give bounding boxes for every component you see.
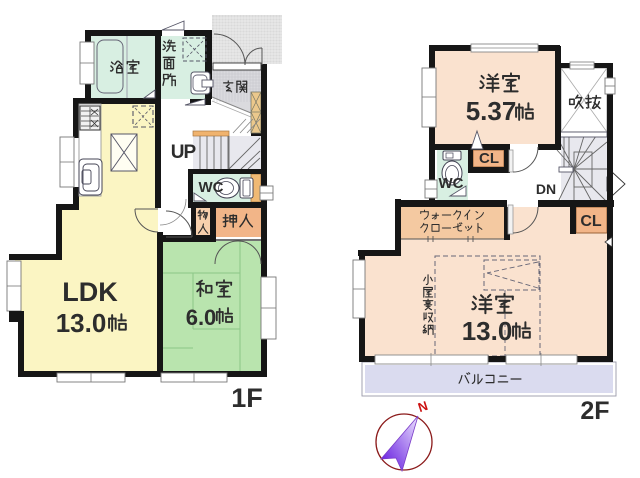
svg-text:UP: UP — [171, 142, 197, 163]
svg-text:6.0: 6.0 — [186, 305, 217, 330]
svg-text:DN: DN — [536, 181, 556, 197]
svg-text:13.0: 13.0 — [462, 316, 513, 346]
svg-text:LDK: LDK — [62, 277, 118, 307]
svg-text:2F: 2F — [580, 397, 609, 425]
svg-text:5.37: 5.37 — [466, 96, 517, 126]
svg-text:CL: CL — [580, 213, 602, 230]
svg-text:WC: WC — [439, 175, 464, 192]
svg-text:13.0: 13.0 — [56, 308, 107, 338]
svg-text:CL: CL — [479, 150, 499, 167]
svg-text:WC: WC — [199, 179, 224, 196]
svg-text:1F: 1F — [231, 383, 263, 413]
